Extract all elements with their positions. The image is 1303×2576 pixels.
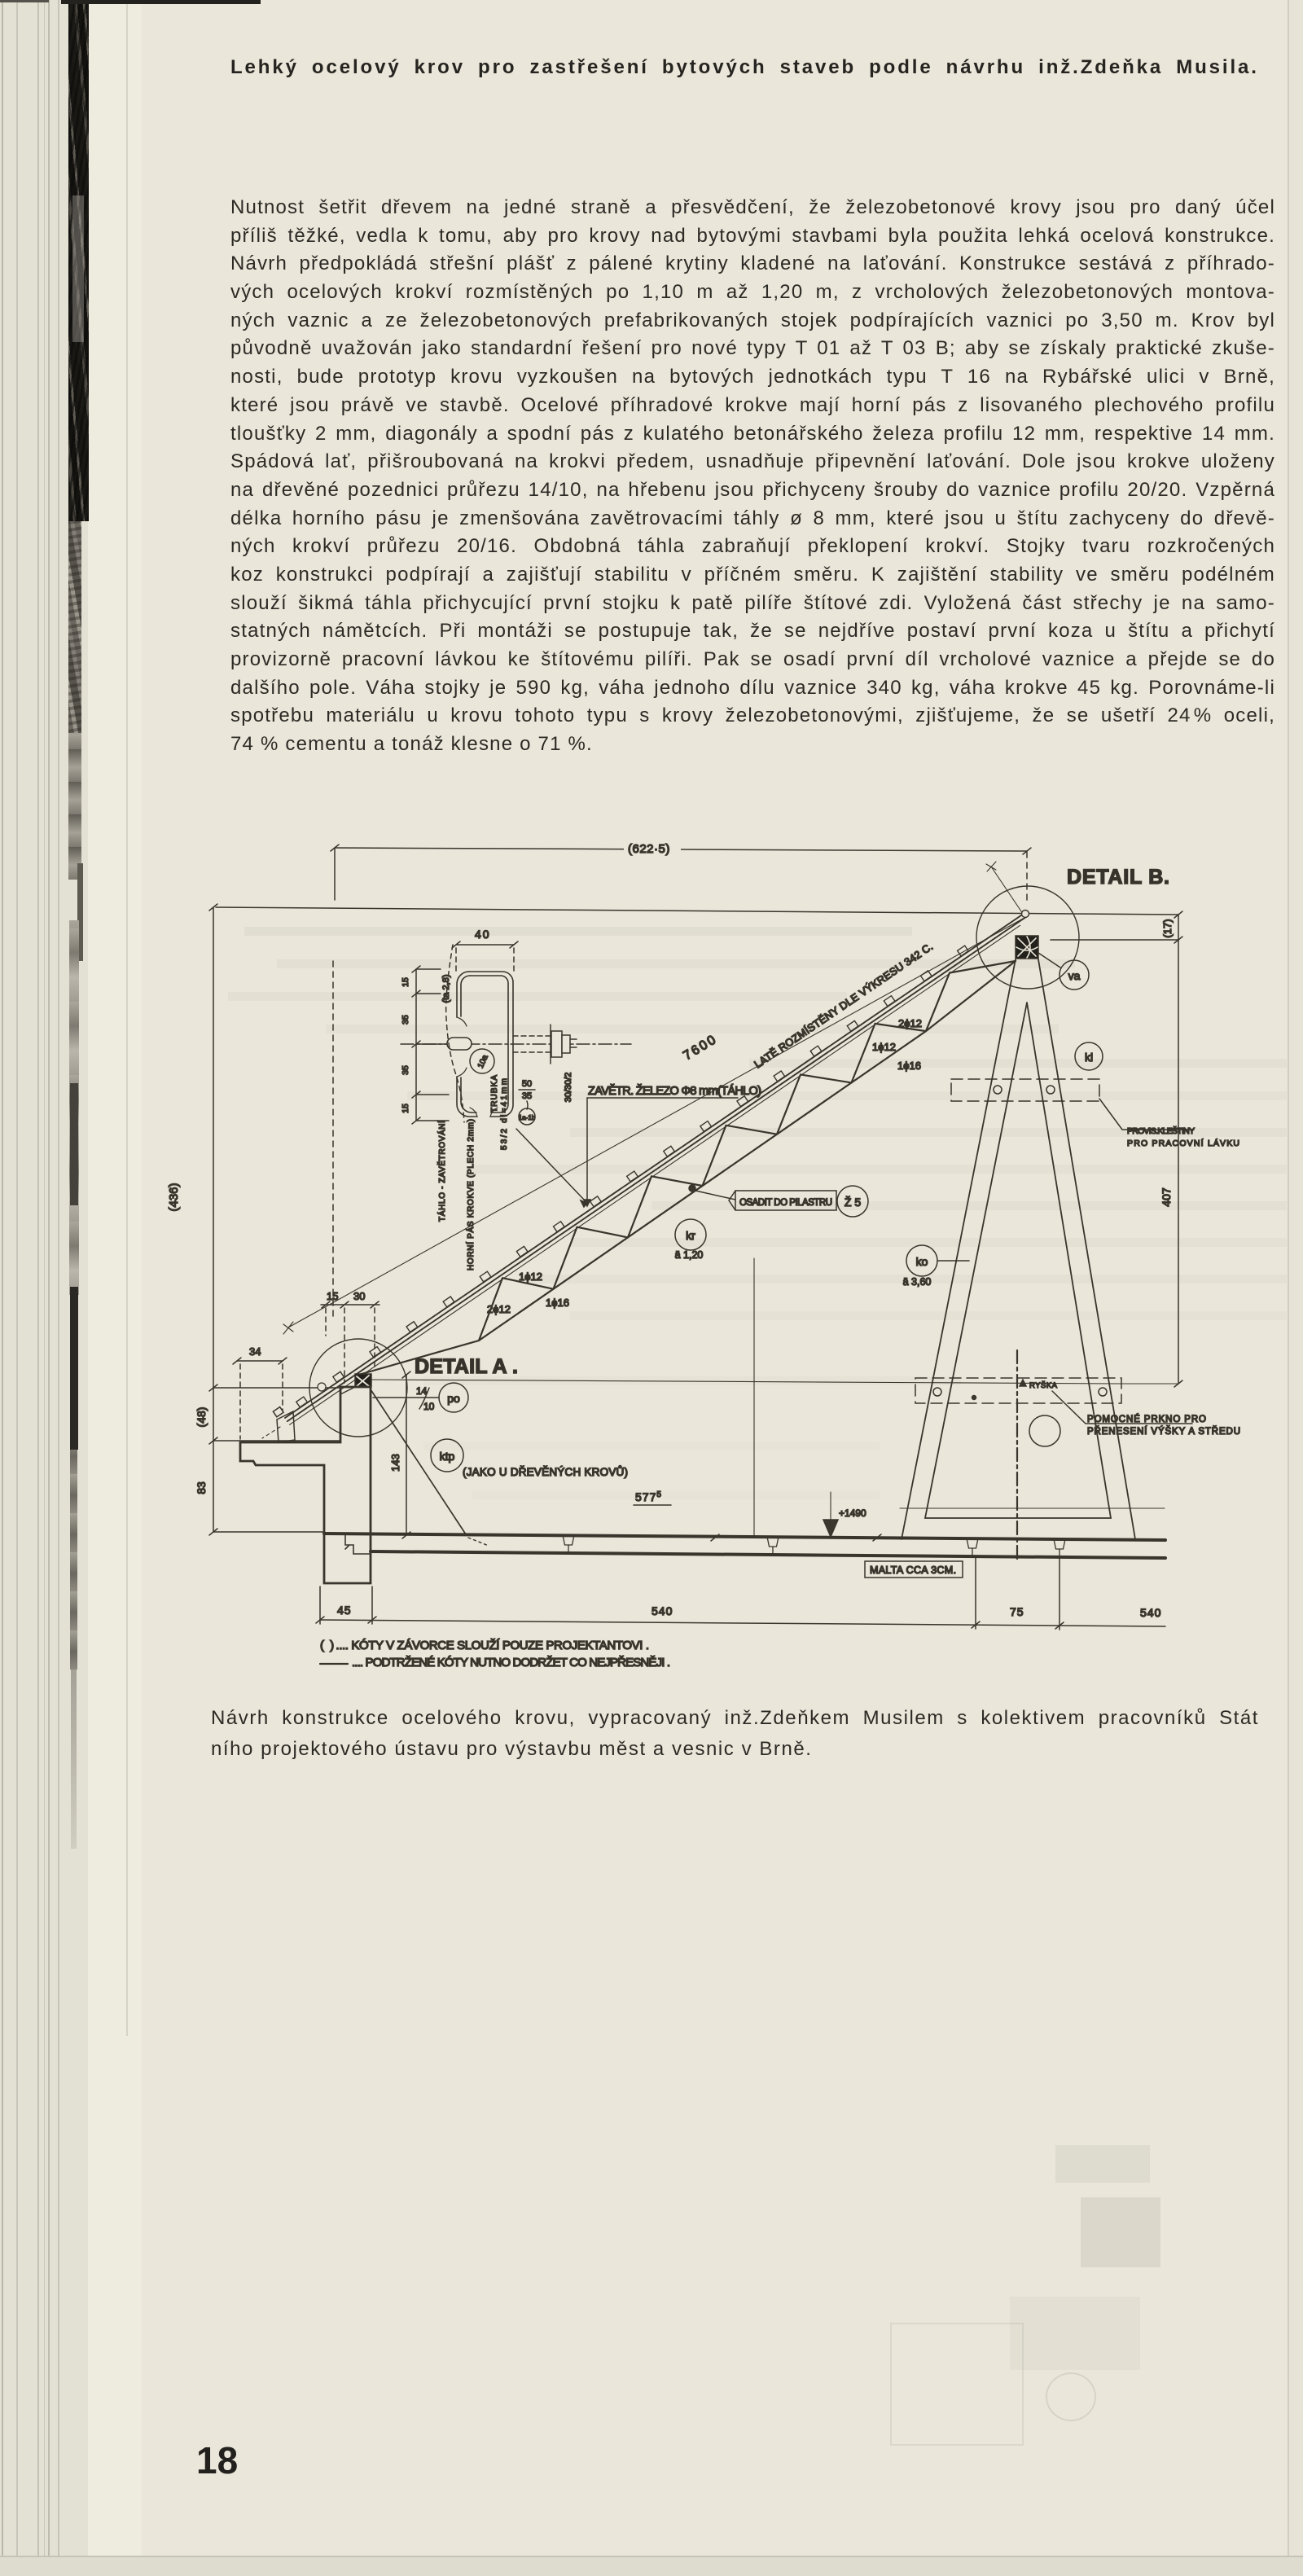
svg-text:1ϕ12: 1ϕ12 [519, 1270, 542, 1283]
svg-text:HORNÍ PÁS KROKVE (PLECH 2mm): HORNÍ PÁS KROKVE (PLECH 2mm) [465, 1119, 476, 1270]
svg-text:ā 3,60: ā 3,60 [903, 1276, 932, 1288]
svg-text:15: 15 [327, 1290, 338, 1302]
svg-text:1ϕ16: 1ϕ16 [897, 1060, 921, 1072]
svg-text:ā 1,20: ā 1,20 [675, 1249, 704, 1261]
svg-text:540: 540 [651, 1604, 673, 1617]
svg-text:34: 34 [249, 1345, 261, 1358]
svg-text:ktp: ktp [440, 1450, 455, 1463]
svg-text:RYŠKA: RYŠKA [1029, 1381, 1058, 1390]
svg-text:2ϕ12: 2ϕ12 [487, 1303, 511, 1315]
svg-text:po: po [447, 1392, 460, 1405]
svg-text:50: 50 [522, 1079, 532, 1089]
svg-text:35: 35 [522, 1091, 532, 1101]
svg-text:30: 30 [353, 1290, 365, 1302]
svg-text:30/30/2: 30/30/2 [564, 1073, 573, 1103]
svg-text:10: 10 [423, 1401, 435, 1412]
svg-text:35: 35 [401, 1065, 410, 1075]
svg-text:1ϕ16: 1ϕ16 [546, 1297, 569, 1309]
svg-text:75: 75 [1010, 1605, 1024, 1618]
svg-text:40: 40 [475, 928, 491, 941]
svg-text:(JAKO U DŘEVĚNÝCH KROVŮ): (JAKO U DŘEVĚNÝCH KROVŮ) [463, 1466, 628, 1478]
svg-text:5775: 5775 [635, 1490, 662, 1503]
svg-text:14: 14 [416, 1385, 428, 1397]
svg-text:143: 143 [389, 1454, 401, 1472]
svg-text:10a: 10a [476, 1053, 490, 1069]
svg-text:LATĚ ROZMÍSTĚNY DLE VÝKRESU 34: LATĚ ROZMÍSTĚNY DLE VÝKRESU 342 C. [752, 940, 935, 1070]
svg-text:(17): (17) [1161, 919, 1174, 937]
svg-text:540: 540 [1140, 1606, 1161, 1619]
svg-text:83: 83 [195, 1481, 208, 1494]
svg-text:POMOCNÉ PRKNO PRO: POMOCNÉ PRKNO PRO [1087, 1414, 1206, 1424]
svg-text:7600: 7600 [681, 1032, 720, 1063]
svg-text:kr: kr [686, 1229, 695, 1242]
svg-text:Ž 5: Ž 5 [845, 1196, 861, 1209]
svg-text:(48): (48) [195, 1407, 208, 1428]
svg-text:PŘENESENÍ VÝŠKY A STŘEDU: PŘENESENÍ VÝŠKY A STŘEDU [1087, 1426, 1240, 1437]
svg-text:PRO PRACOVNÍ LÁVKU: PRO PRACOVNÍ LÁVKU [1127, 1138, 1239, 1148]
svg-text:ko: ko [916, 1255, 928, 1268]
svg-text:(436): (436) [167, 1183, 181, 1211]
svg-text:TÁHLO - ZAVĚTROVÁNÍ: TÁHLO - ZAVĚTROVÁNÍ [437, 1121, 447, 1222]
svg-text:15: 15 [401, 977, 410, 987]
svg-text:2ϕ12: 2ϕ12 [898, 1017, 922, 1029]
svg-text:(622·5): (622·5) [628, 842, 670, 856]
svg-text:DETAIL B.: DETAIL B. [1067, 866, 1170, 889]
svg-text:MALTA CCA 3CM.: MALTA CCA 3CM. [870, 1564, 956, 1576]
svg-text:45: 45 [337, 1604, 352, 1617]
svg-text:+1490: +1490 [839, 1507, 866, 1519]
svg-text:( ) .... KÓTY V ZÁVORCE SLOUŽ: ( ) .... KÓTY V ZÁVORCE SLOUŽÍ POUZE PRO… [320, 1639, 649, 1652]
svg-text:kl: kl [1085, 1051, 1093, 1064]
svg-text:1ϕ12: 1ϕ12 [872, 1041, 896, 1053]
svg-text:va: va [1068, 969, 1081, 982]
svg-text:ZAVĚTR. ŽELEZO Φ8 mm(TÁHLO): ZAVĚTR. ŽELEZO Φ8 mm(TÁHLO) [588, 1084, 761, 1098]
svg-text:.... PODTRŽENÉ KÓTY NUTNO DODR: .... PODTRŽENÉ KÓTY NUTNO DODRŽET CO NEJ… [352, 1656, 670, 1670]
svg-text:DETAIL A .: DETAIL A . [415, 1355, 519, 1378]
svg-text:15: 15 [401, 1104, 410, 1113]
svg-text:407: 407 [1160, 1187, 1173, 1207]
svg-text:PROVIS.KLEŠTINY: PROVIS.KLEŠTINY [1127, 1126, 1195, 1136]
svg-text:TRUBKA: TRUBKA [490, 1075, 499, 1112]
svg-text:OSADIT DO PILASTRU: OSADIT DO PILASTRU [739, 1198, 832, 1208]
svg-text:35: 35 [401, 1015, 410, 1025]
svg-text:1a-1b: 1a-1b [519, 1114, 536, 1121]
